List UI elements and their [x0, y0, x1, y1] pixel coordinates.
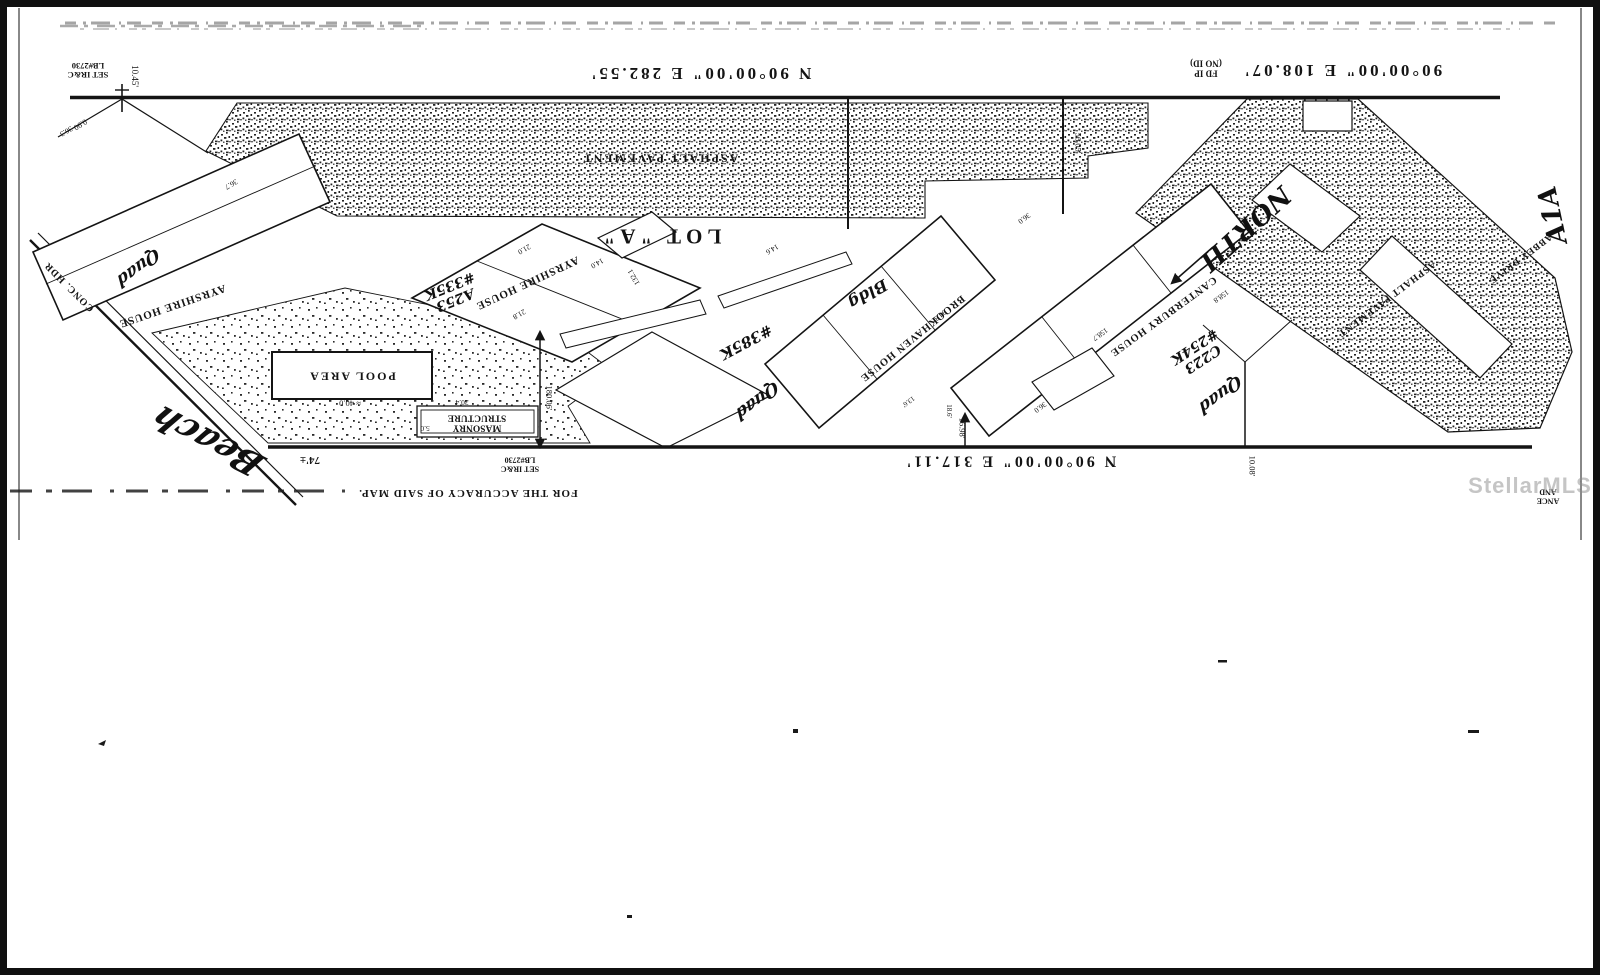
hw-quad-west: Quad [114, 243, 162, 290]
dim-14-6: 14.6 [764, 242, 779, 256]
ayrshire-house-label: AYRSHIRE HOUSE [474, 253, 581, 311]
scanned-survey-page: N 90°00'00" E 282.55'90°00'00" E 108.07'… [0, 0, 1600, 975]
hw-quad-center: Quad [733, 376, 781, 423]
dim-36-7: 36.7 [223, 177, 238, 191]
dim-14-0: 14.0 [589, 256, 604, 270]
brookhaven-house-label: BROOKHAVEN HOUSE [858, 292, 967, 383]
dim-16-98: 16.98' [957, 418, 966, 439]
found-iron-pipe-note: FD IP (NO ID) [1190, 58, 1222, 77]
dim-5-0: 5.0 [420, 424, 429, 432]
dim-21-8: 21.8 [511, 307, 526, 321]
hw-north: NORTH [1194, 180, 1296, 275]
dim-36-0-n: 36.0 [1016, 211, 1031, 225]
conc-hdr-label: CONC. HDR [43, 259, 97, 313]
dim-36-3: 36.3 [58, 124, 73, 138]
dim-21-0: 21.0 [516, 242, 531, 256]
label-layer: N 90°00'00" E 282.55'90°00'00" E 108.07'… [0, 0, 1600, 975]
hw-beach: Beach [144, 399, 273, 482]
bearing-north-east: 90°00'00" E 108.07' [1242, 61, 1442, 79]
bearing-north-west: N 90°00'00" E 282.55' [589, 64, 812, 82]
hw-bldg: Bldg [846, 276, 891, 312]
dim-30-4: 30.4 [455, 398, 468, 406]
mls-watermark: StellarMLS [1468, 474, 1592, 498]
ayrshire-house-west-label: AYRSHIRE HOUSE [117, 281, 227, 329]
dim-132-1: 132.1 [626, 268, 641, 287]
dim-158-7: 158.7 [1091, 326, 1109, 342]
dim-158-8: 158.8 [1212, 288, 1230, 304]
dim-74: 74'± [300, 453, 320, 465]
set-iron-rod-note-s: SET IR&C LB#2730 [501, 455, 539, 472]
accuracy-note: FOR THE ACCURACY OF SAID MAP. [358, 486, 577, 498]
hw-385k: #385K [717, 321, 775, 362]
hw-a253-335k: A253 #335K [422, 268, 483, 316]
dim-10-45: 10.45' [129, 65, 139, 87]
abbey-drive-label: ABBEY DRIVE [1486, 231, 1553, 285]
hw-quad-east: Quad [1196, 370, 1244, 417]
dim-0-90: 0.90 [72, 117, 88, 132]
dim-13-6: 13.6' [900, 394, 915, 408]
dim-180-06: 180.06' [544, 386, 553, 411]
bearing-south: N 90°00'00" E 317.11' [904, 452, 1117, 469]
dim-36-0-s: 36.0 [1032, 400, 1047, 414]
dim-56-05: 56.05' [1073, 133, 1082, 154]
asphalt-pavement-label-east: ASPHALT PAVEMENT [1335, 258, 1437, 339]
dim-18-6: 18.6' [944, 404, 952, 418]
pool-area-label: POOL AREA [308, 370, 396, 383]
set-iron-rod-note-nw: SET IR&C LB#2730 [68, 61, 109, 79]
asphalt-pavement-label-top: ASPHALT PAVEMENT [582, 152, 739, 165]
hw-c223-254k: C223 #254K [1167, 325, 1228, 379]
dim-40-0: ≈ 40.0 [339, 398, 361, 407]
masonry-structure-label: MASONRY STRUCTURE [448, 412, 507, 433]
lot-a-label: LOT "A" [599, 225, 722, 248]
dim-10-08: 10.08' [1247, 456, 1256, 477]
